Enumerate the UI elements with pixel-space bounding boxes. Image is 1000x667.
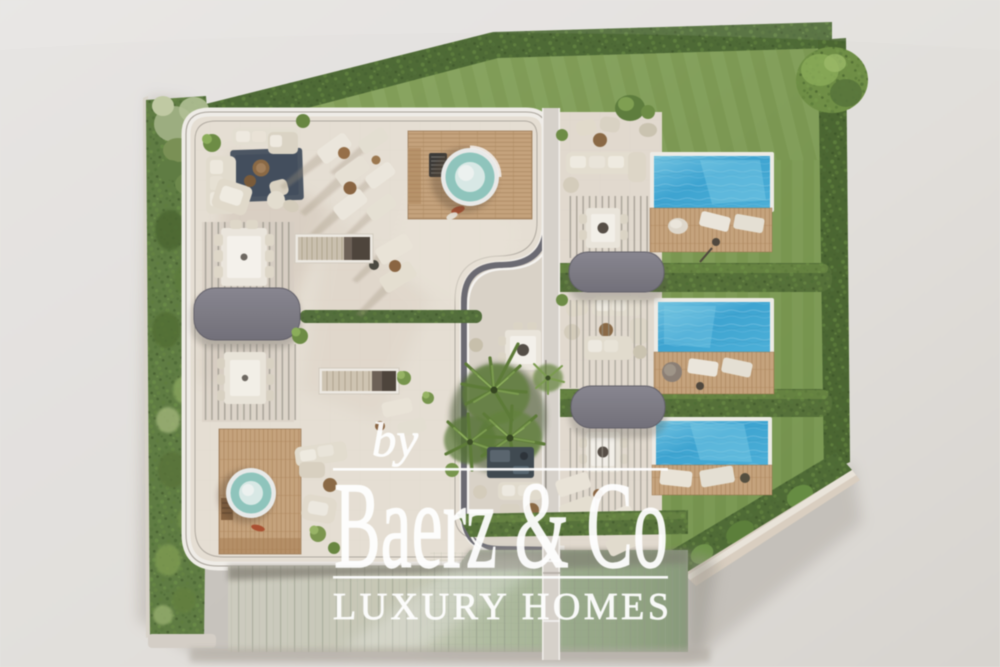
svg-text:Baerz & Co: Baerz & Co xyxy=(334,457,668,594)
